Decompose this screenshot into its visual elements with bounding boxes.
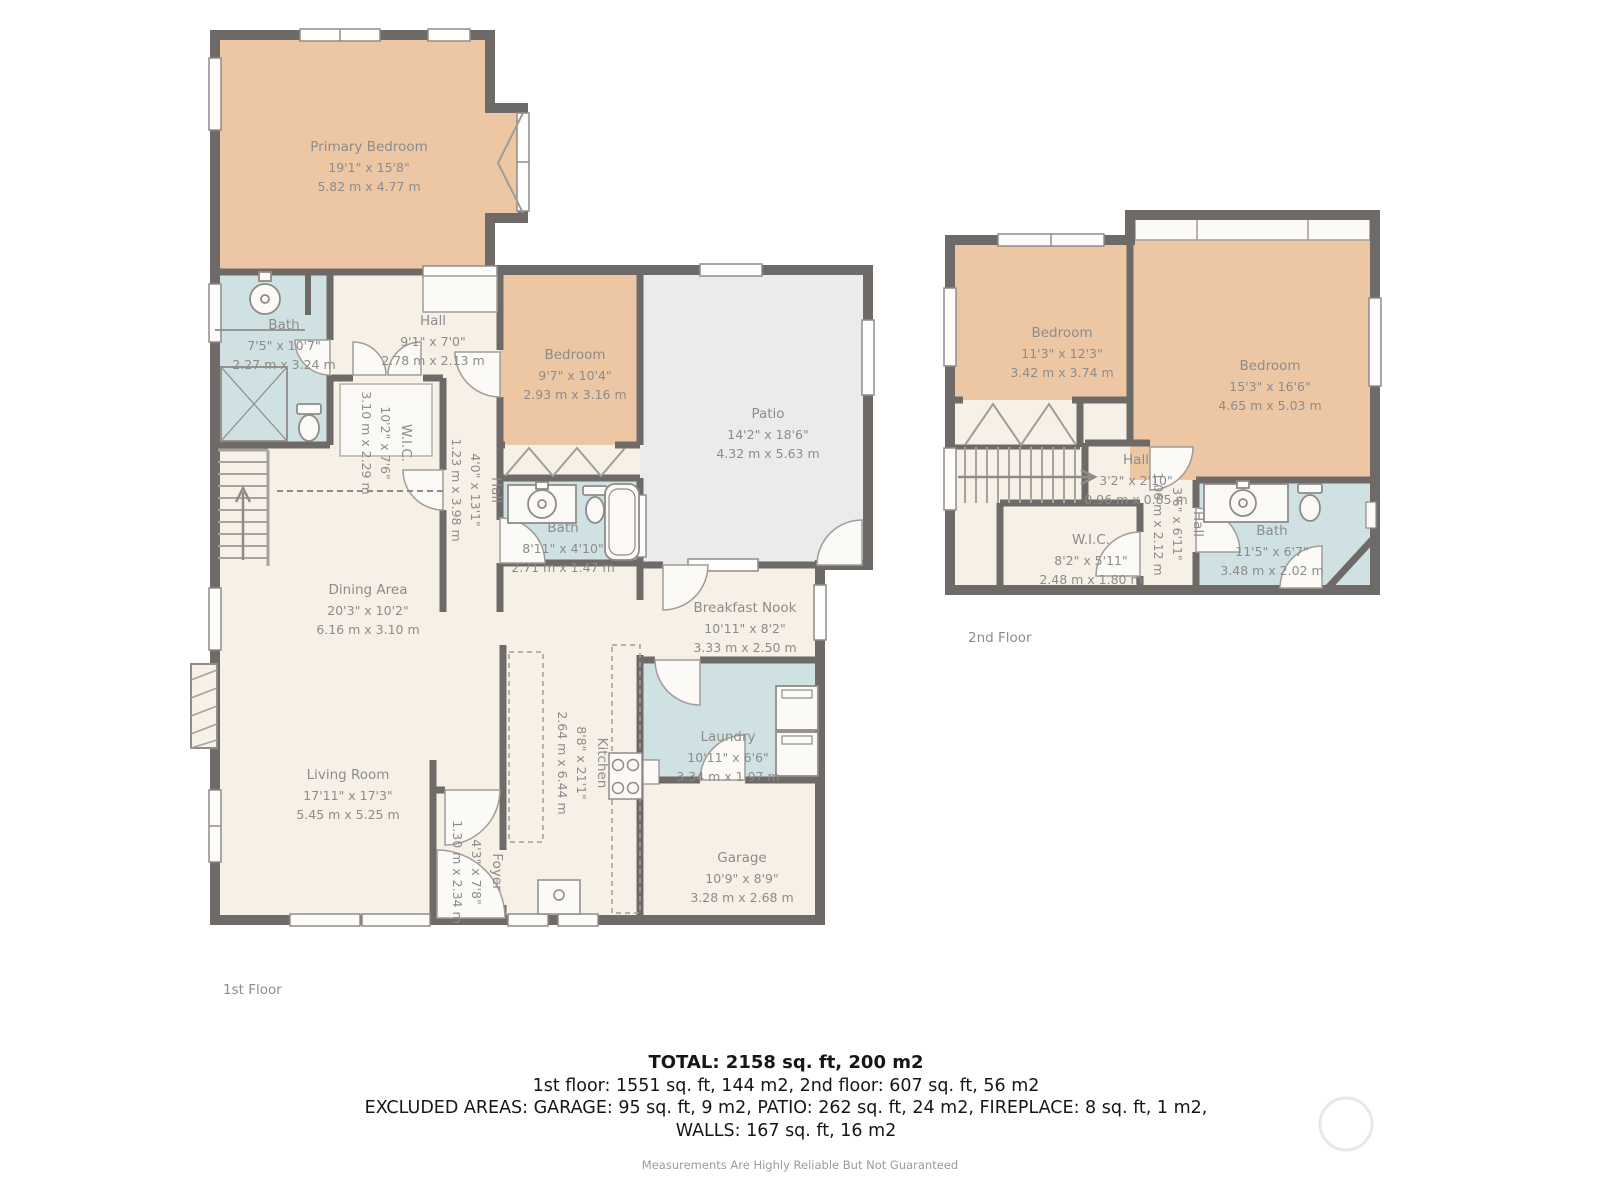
room-dim-m: 2.78 m x 2.13 m <box>381 351 484 370</box>
room-name: W.I.C. <box>395 391 416 494</box>
floor2-caption: 2nd Floor <box>968 630 1032 646</box>
sink-tap <box>1237 481 1249 488</box>
room-label-hall-vertical-f2: Hall 3'6" x 6'11" 1.06 m x 2.12 m <box>1148 472 1208 575</box>
room-name: Bath <box>511 518 614 539</box>
kitchen-sink-icon <box>538 880 580 914</box>
room-dim-m: 1.06 m x 2.12 m <box>1148 472 1167 575</box>
room-name: Bedroom <box>523 345 626 366</box>
sink-drain <box>261 295 269 303</box>
room-dim-m: 1.30 m x 2.34 m <box>447 820 466 923</box>
room-dim-m: 4.65 m x 5.03 m <box>1218 396 1321 415</box>
room-label-bath-1: Bath 7'5" x 10'7" 2.27 m x 3.24 m <box>232 315 335 375</box>
room-name: Breakfast Nook <box>693 598 796 619</box>
sink-tap <box>259 272 271 281</box>
summary-excluded-line: EXCLUDED AREAS: GARAGE: 95 sq. ft, 9 m2,… <box>0 1097 1572 1120</box>
room-name: Hall <box>1084 450 1187 471</box>
room-label-wic-f2: W.I.C. 8'2" x 5'11" 2.48 m x 1.80 m <box>1039 530 1142 590</box>
room-dim-m: 6.16 m x 3.10 m <box>316 620 419 639</box>
room-label-wic-1: W.I.C. 10'2" x 7'6" 3.10 m x 2.29 m <box>356 391 416 494</box>
room-name: Bath <box>232 315 335 336</box>
room-dim-ft: 8'8" x 21'1" <box>572 711 591 814</box>
room-label-kitchen: Kitchen 8'8" x 21'1" 2.64 m x 6.44 m <box>552 711 612 814</box>
sink-drain <box>1239 499 1247 507</box>
room-dim-ft: 10'2" x 7'6" <box>376 391 395 494</box>
room-dim-ft: 9'1" x 7'0" <box>381 332 484 351</box>
room-dim-ft: 9'7" x 10'4" <box>523 366 626 385</box>
room-dim-m: 5.82 m x 4.77 m <box>310 177 428 196</box>
fireplace <box>191 664 217 748</box>
room-name: Bedroom <box>1218 356 1321 377</box>
room-label-foyer: Foyer 4'3" x 7'8" 1.30 m x 2.34 m <box>447 820 507 923</box>
room-dim-ft: 11'3" x 12'3" <box>1010 344 1113 363</box>
room-dim-m: 1.23 m x 3.98 m <box>446 438 465 541</box>
room-dim-ft: 4'0" x 13'1" <box>466 438 485 541</box>
room-name: Primary Bedroom <box>310 137 428 158</box>
room-label-primary-bedroom: Primary Bedroom 19'1" x 15'8" 5.82 m x 4… <box>310 137 428 197</box>
room-dim-ft: 19'1" x 15'8" <box>310 158 428 177</box>
summary-walls-line: WALLS: 167 sq. ft, 16 m2 <box>0 1120 1572 1143</box>
room-label-bedroom-f1: Bedroom 9'7" x 10'4" 2.93 m x 3.16 m <box>523 345 626 405</box>
room-name: Dining Area <box>316 580 419 601</box>
room-label-dining-area: Dining Area 20'3" x 10'2" 6.16 m x 3.10 … <box>316 580 419 640</box>
toilet-bowl <box>299 415 319 441</box>
room-label-garage: Garage 10'9" x 8'9" 3.28 m x 2.68 m <box>690 848 793 908</box>
room-label-bedroom-left-f2: Bedroom 11'3" x 12'3" 3.42 m x 3.74 m <box>1010 323 1113 383</box>
disclaimer-text: Measurements Are Highly Reliable But Not… <box>0 1158 1600 1172</box>
room-name: Foyer <box>486 820 507 923</box>
room-dim-m: 4.32 m x 5.63 m <box>716 444 819 463</box>
room-dim-ft: 10'9" x 8'9" <box>690 869 793 888</box>
room-dim-m: 3.10 m x 2.29 m <box>356 391 375 494</box>
hall-closet <box>423 276 497 312</box>
room-name: Bath <box>1220 521 1323 542</box>
room-label-bath-2: Bath 8'11" x 4'10" 2.71 m x 1.47 m <box>511 518 614 578</box>
room-dim-m: 5.45 m x 5.25 m <box>296 805 399 824</box>
room-label-living-room: Living Room 17'11" x 17'3" 5.45 m x 5.25… <box>296 765 399 825</box>
area-summary: TOTAL: 2158 sq. ft, 200 m2 1st floor: 15… <box>0 1052 1572 1142</box>
toilet-tank <box>583 486 607 495</box>
room-label-bath-f2: Bath 11'5" x 6'7" 3.48 m x 2.02 m <box>1220 521 1323 581</box>
room-dim-m: 2.48 m x 1.80 m <box>1039 570 1142 589</box>
room-dim-ft: 14'2" x 18'6" <box>716 425 819 444</box>
room-name: Living Room <box>296 765 399 786</box>
toilet-tank <box>297 404 321 414</box>
room-name: Laundry <box>676 727 779 748</box>
room-dim-ft: 17'11" x 17'3" <box>296 786 399 805</box>
room-dim-ft: 7'5" x 10'7" <box>232 336 335 355</box>
room-dim-ft: 15'3" x 16'6" <box>1218 377 1321 396</box>
sink-drain <box>538 500 546 508</box>
wall-fixture <box>1366 502 1376 528</box>
room-label-hall-upper: Hall 9'1" x 7'0" 2.78 m x 2.13 m <box>381 311 484 371</box>
room-label-laundry: Laundry 10'11" x 6'6" 3.34 m x 1.97 m <box>676 727 779 787</box>
laundry-tub-icon <box>643 760 659 784</box>
room-name: Hall <box>1187 472 1208 575</box>
summary-floors-line: 1st floor: 1551 sq. ft, 144 m2, 2nd floo… <box>0 1075 1572 1098</box>
floor1-caption: 1st Floor <box>223 982 282 998</box>
room-dim-ft: 10'11" x 8'2" <box>693 619 796 638</box>
room-dim-ft: 3'6" x 6'11" <box>1168 472 1187 575</box>
room-label-bedroom-right-f2: Bedroom 15'3" x 16'6" 4.65 m x 5.03 m <box>1218 356 1321 416</box>
room-name: W.I.C. <box>1039 530 1142 551</box>
room-dim-m: 3.28 m x 2.68 m <box>690 888 793 907</box>
floorplan-canvas <box>0 0 1600 1200</box>
room-dim-ft: 11'5" x 6'7" <box>1220 542 1323 561</box>
room-name: Hall <box>381 311 484 332</box>
toilet-bowl <box>1300 495 1320 521</box>
room-dim-ft: 20'3" x 10'2" <box>316 601 419 620</box>
room-dim-ft: 8'11" x 4'10" <box>511 539 614 558</box>
room-dim-m: 2.71 m x 1.47 m <box>511 558 614 577</box>
room-dim-m: 2.93 m x 3.16 m <box>523 385 626 404</box>
room-dim-m: 2.64 m x 6.44 m <box>552 711 571 814</box>
summary-total: TOTAL: 2158 sq. ft, 200 m2 <box>0 1052 1572 1075</box>
room-name: Hall <box>485 438 506 541</box>
sink-tap <box>536 482 548 489</box>
room-name: Patio <box>716 404 819 425</box>
room-dim-m: 3.42 m x 3.74 m <box>1010 363 1113 382</box>
room-dim-m: 3.34 m x 1.97 m <box>676 767 779 786</box>
room-label-patio: Patio 14'2" x 18'6" 4.32 m x 5.63 m <box>716 404 819 464</box>
first-floor-plan <box>191 29 874 926</box>
stove-icon <box>609 753 642 799</box>
toilet-tank <box>1298 484 1322 493</box>
room-name: Kitchen <box>591 711 612 814</box>
room-name: Garage <box>690 848 793 869</box>
room-dim-ft: 10'11" x 6'6" <box>676 748 779 767</box>
room-name: Bedroom <box>1010 323 1113 344</box>
room-dim-m: 2.27 m x 3.24 m <box>232 355 335 374</box>
bedroom-right-closet <box>1135 219 1370 240</box>
room-dim-m: 3.48 m x 2.02 m <box>1220 561 1323 580</box>
room-label-hall-vertical: Hall 4'0" x 13'1" 1.23 m x 3.98 m <box>446 438 506 541</box>
room-dim-ft: 8'2" x 5'11" <box>1039 551 1142 570</box>
room-dim-ft: 4'3" x 7'8" <box>467 820 486 923</box>
room-dim-m: 3.33 m x 2.50 m <box>693 638 796 657</box>
room-label-breakfast-nook: Breakfast Nook 10'11" x 8'2" 3.33 m x 2.… <box>693 598 796 658</box>
